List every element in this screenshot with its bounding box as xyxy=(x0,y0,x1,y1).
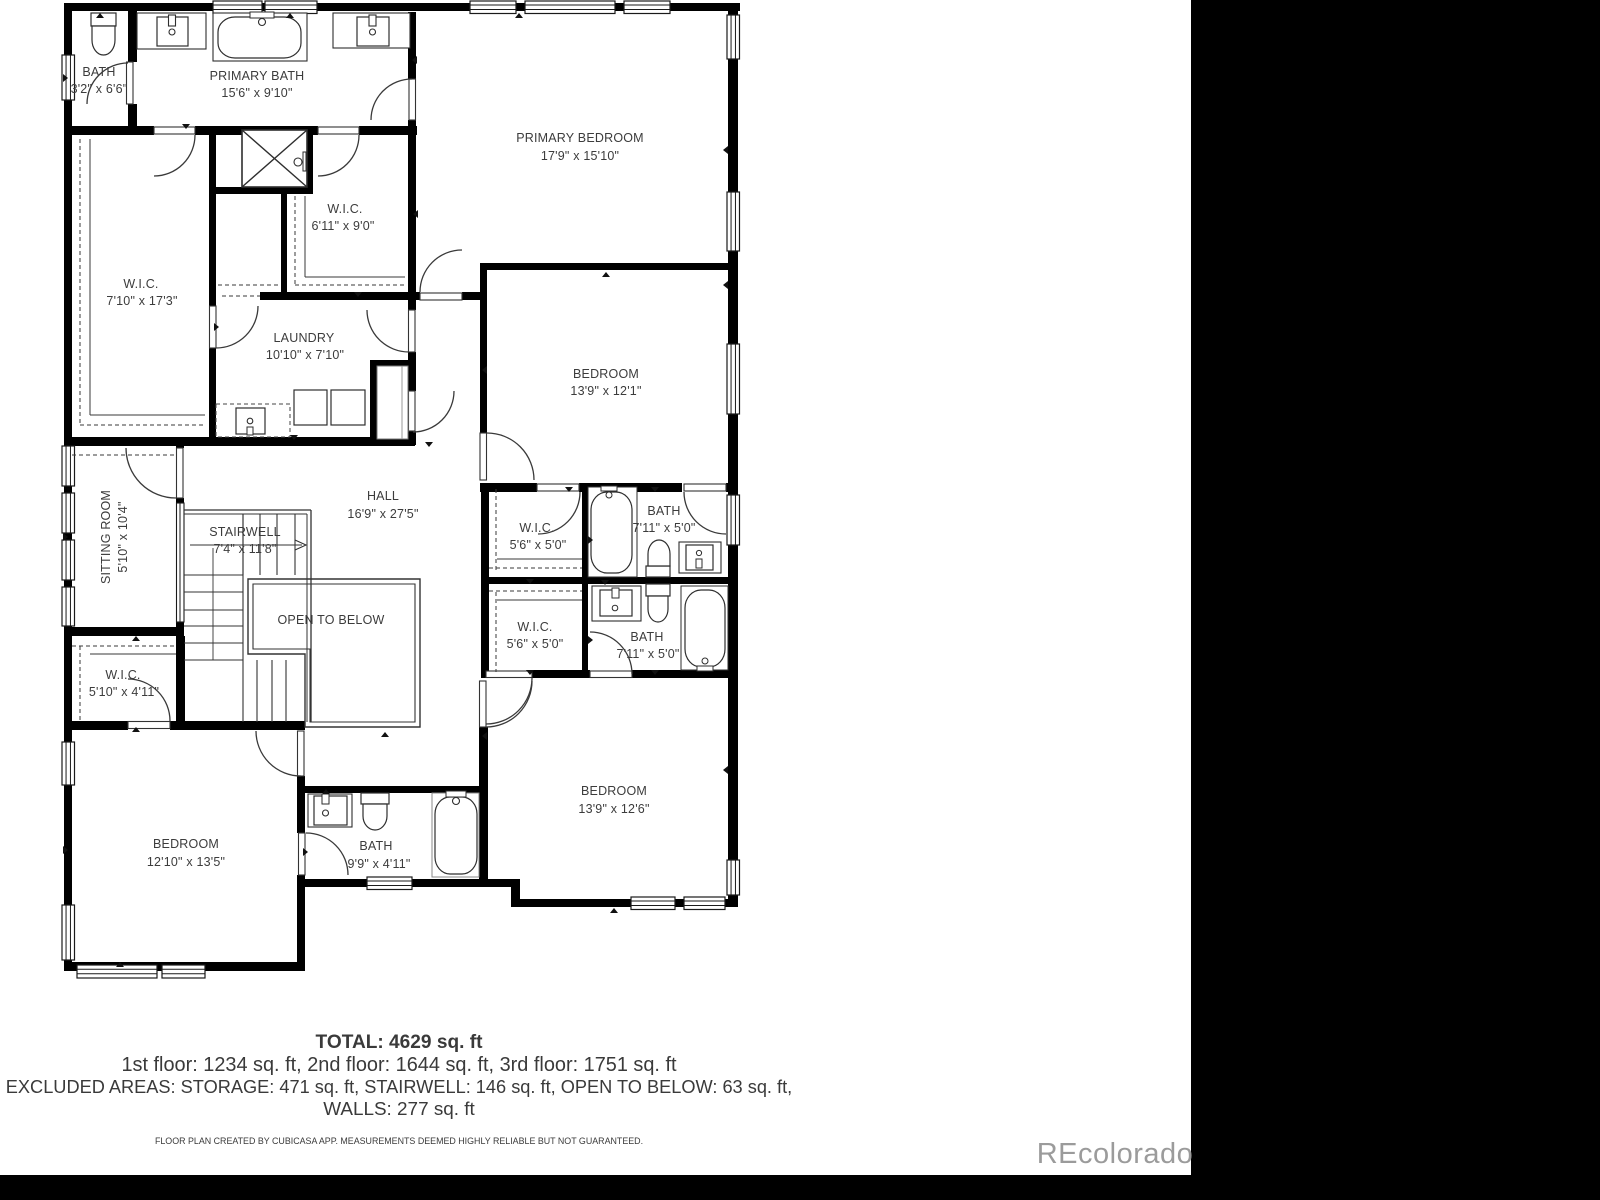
svg-text:10'10" x 7'10": 10'10" x 7'10" xyxy=(266,348,344,362)
svg-text:1st floor: 1234 sq. ft, 2nd fl: 1st floor: 1234 sq. ft, 2nd floor: 1644 … xyxy=(121,1054,677,1076)
svg-text:16'9" x 27'5": 16'9" x 27'5" xyxy=(347,507,418,521)
svg-text:W.I.C.: W.I.C. xyxy=(123,277,158,291)
svg-text:9'9" x 4'11": 9'9" x 4'11" xyxy=(347,857,410,871)
svg-text:WALLS: 277 sq. ft: WALLS: 277 sq. ft xyxy=(323,1099,475,1120)
svg-text:5'10" x 4'11": 5'10" x 4'11" xyxy=(89,685,159,699)
svg-text:W.I.C.: W.I.C. xyxy=(105,668,140,682)
svg-text:SITTING ROOM: SITTING ROOM xyxy=(99,490,113,584)
svg-text:6'11" x 9'0": 6'11" x 9'0" xyxy=(311,219,374,233)
svg-text:17'9" x 15'10": 17'9" x 15'10" xyxy=(541,149,619,163)
svg-text:13'9" x 12'1": 13'9" x 12'1" xyxy=(570,384,641,398)
svg-text:PRIMARY BEDROOM: PRIMARY BEDROOM xyxy=(516,131,644,145)
svg-text:5'10" x 10'4": 5'10" x 10'4" xyxy=(116,501,130,572)
svg-text:BATH: BATH xyxy=(630,630,663,644)
svg-text:HALL: HALL xyxy=(367,489,399,503)
svg-text:BATH: BATH xyxy=(647,504,680,518)
svg-text:STAIRWELL: STAIRWELL xyxy=(209,525,281,539)
svg-text:7'10" x 17'3": 7'10" x 17'3" xyxy=(106,294,177,308)
svg-text:BEDROOM: BEDROOM xyxy=(153,837,219,851)
svg-text:BATH: BATH xyxy=(359,839,392,853)
svg-text:FLOOR PLAN CREATED BY CUBICASA: FLOOR PLAN CREATED BY CUBICASA APP. MEAS… xyxy=(155,1136,643,1146)
svg-text:12'10" x 13'5": 12'10" x 13'5" xyxy=(147,855,225,869)
svg-text:5'6" x 5'0": 5'6" x 5'0" xyxy=(510,538,567,552)
svg-text:7'11" x 5'0": 7'11" x 5'0" xyxy=(632,521,695,535)
svg-text:LAUNDRY: LAUNDRY xyxy=(274,331,335,345)
svg-text:3'2" x 6'6": 3'2" x 6'6" xyxy=(71,82,128,96)
svg-text:BEDROOM: BEDROOM xyxy=(573,367,639,381)
svg-text:TOTAL: 4629 sq. ft: TOTAL: 4629 sq. ft xyxy=(316,1032,484,1053)
svg-text:BATH: BATH xyxy=(82,65,115,79)
svg-text:PRIMARY BATH: PRIMARY BATH xyxy=(210,69,305,83)
svg-text:REcolorado: REcolorado xyxy=(1037,1138,1194,1170)
svg-text:W.I.C.: W.I.C. xyxy=(517,620,552,634)
svg-text:13'9" x 12'6": 13'9" x 12'6" xyxy=(578,802,649,816)
svg-text:7'11" x 5'0": 7'11" x 5'0" xyxy=(616,647,679,661)
svg-text:7'4" x 11'8": 7'4" x 11'8" xyxy=(213,542,276,556)
svg-text:15'6" x 9'10": 15'6" x 9'10" xyxy=(221,86,292,100)
svg-text:W.I.C.: W.I.C. xyxy=(327,202,362,216)
svg-text:W.I.C.: W.I.C. xyxy=(519,521,554,535)
svg-text:EXCLUDED AREAS: STORAGE: 471 s: EXCLUDED AREAS: STORAGE: 471 sq. ft, STA… xyxy=(6,1077,792,1097)
svg-text:5'6" x 5'0": 5'6" x 5'0" xyxy=(507,637,564,651)
svg-text:BEDROOM: BEDROOM xyxy=(581,784,647,798)
svg-text:OPEN TO BELOW: OPEN TO BELOW xyxy=(277,613,384,627)
